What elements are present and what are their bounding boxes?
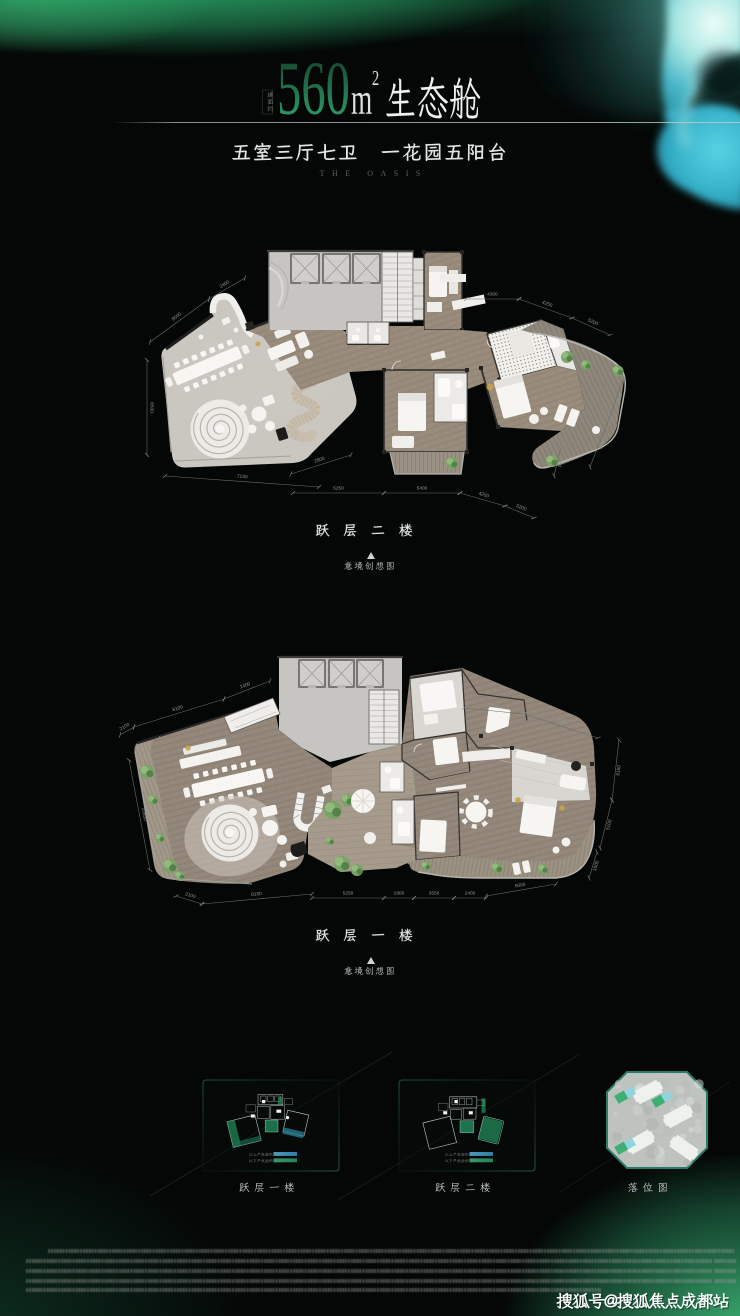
svg-text:5200: 5200 <box>587 317 599 327</box>
svg-text:5250: 5250 <box>343 891 354 897</box>
svg-text:5200: 5200 <box>515 503 527 513</box>
svg-text:2400: 2400 <box>465 891 476 897</box>
svg-text:1800: 1800 <box>394 891 405 897</box>
svg-text:5400: 5400 <box>417 486 428 492</box>
svg-text:5700: 5700 <box>489 703 501 710</box>
svg-text:6500: 6500 <box>149 402 155 413</box>
svg-text:5250: 5250 <box>333 486 344 492</box>
svg-text:8500: 8500 <box>171 311 183 322</box>
svg-text:1600: 1600 <box>592 860 601 872</box>
svg-text:6150: 6150 <box>615 764 622 776</box>
svg-text:6000: 6000 <box>514 882 526 890</box>
svg-text:5100: 5100 <box>605 819 613 831</box>
svg-text:2400: 2400 <box>219 279 232 290</box>
svg-text:7150: 7150 <box>237 474 248 481</box>
svg-text:8100: 8100 <box>251 891 263 898</box>
svg-text:4300: 4300 <box>487 292 498 298</box>
svg-text:3550: 3550 <box>429 891 440 897</box>
svg-text:2100: 2100 <box>119 722 132 733</box>
svg-text:4250: 4250 <box>478 491 490 500</box>
